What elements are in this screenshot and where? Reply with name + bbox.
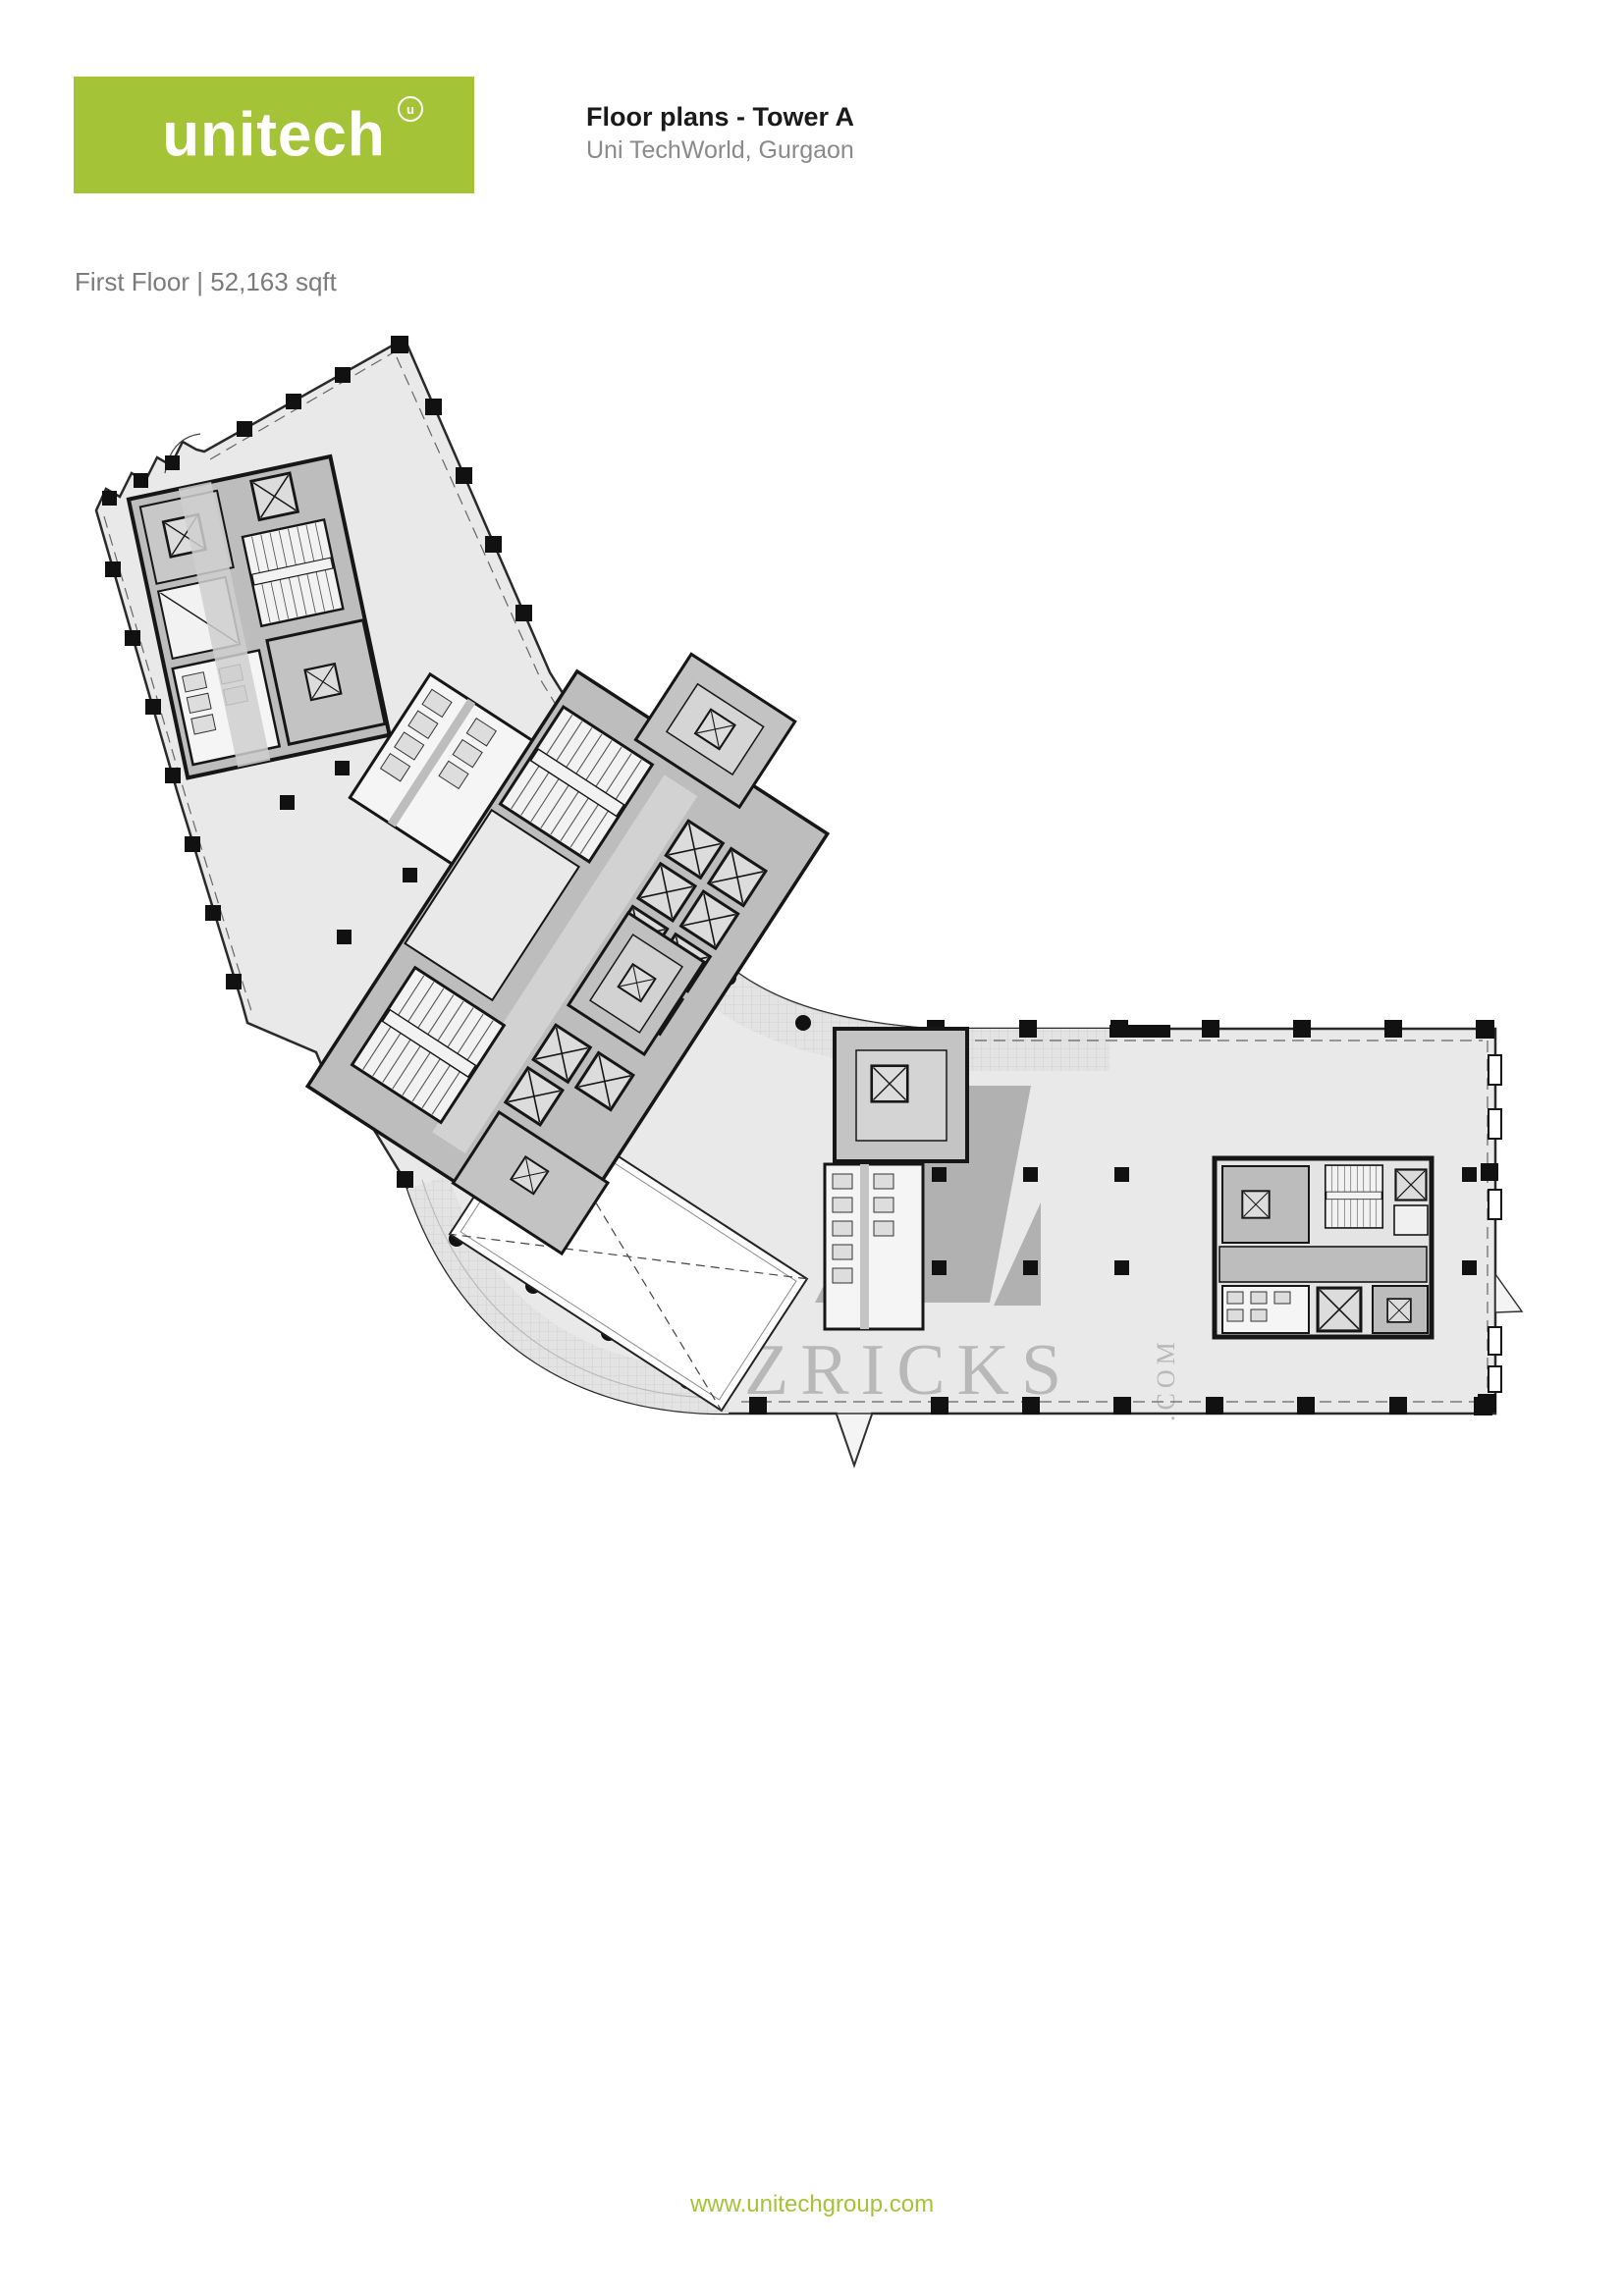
- east-entrance-flap: [1495, 1274, 1522, 1312]
- floor-plan: ZRICKS .COM: [0, 324, 1624, 1502]
- page-subtitle: Uni TechWorld, Gurgaon: [586, 134, 854, 167]
- page-title: Floor plans - Tower A: [586, 101, 854, 134]
- south-entrance-flap: [837, 1414, 872, 1465]
- logo-wordmark: unitech: [162, 104, 385, 166]
- watermark-suffix: .COM: [1152, 1337, 1180, 1421]
- page: { "header": { "logo_text": "unitech", "l…: [0, 0, 1624, 2296]
- unitech-logo: unitech u: [74, 77, 474, 193]
- footer-website-link[interactable]: www.unitechgroup.com: [0, 2191, 1624, 2218]
- logo-registered-mark-icon: u: [398, 96, 423, 122]
- title-block: Floor plans - Tower A Uni TechWorld, Gur…: [586, 101, 854, 166]
- floor-area-label: First Floor | 52,163 sqft: [75, 267, 337, 297]
- east-core: [1215, 1158, 1432, 1337]
